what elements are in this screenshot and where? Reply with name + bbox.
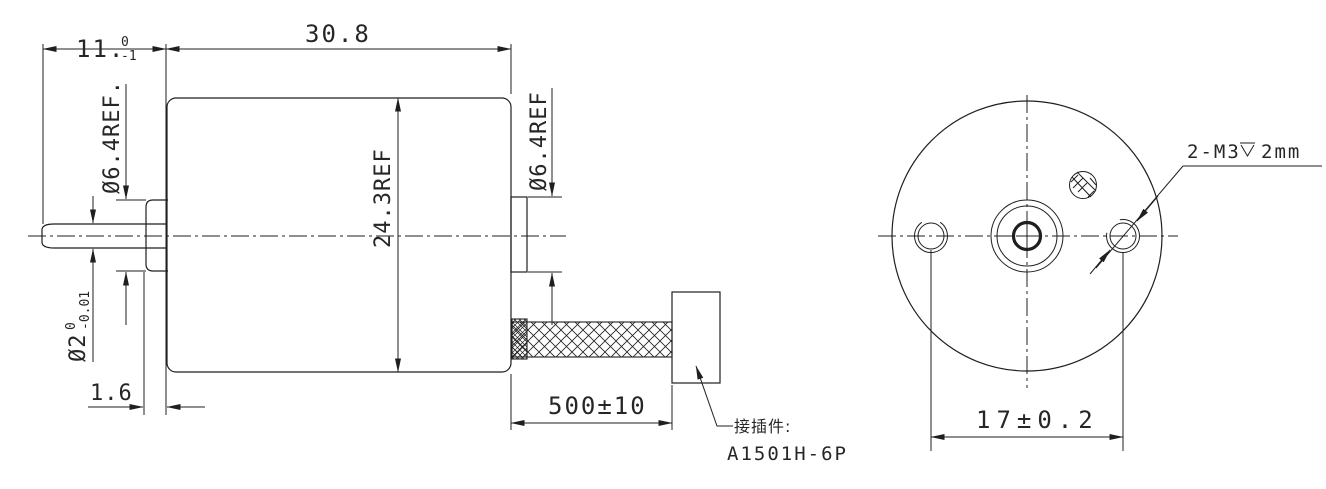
depth-symbol-icon (1240, 143, 1255, 156)
rear-boss (511, 197, 527, 272)
dim-front-boss-dia: Ø6.4REF. (100, 80, 146, 325)
connector-note: 接插件: A1501H-6P (696, 366, 848, 465)
drawing-canvas: 11. 0 -1 30.8 Ø6.4REF. 24.3REF (0, 0, 1326, 489)
dim-shaft-dia-tol-lower: -0.01 (78, 291, 93, 330)
dim-body-length-text: 30.8 (305, 20, 371, 48)
dim-lead-wire-length: 500±10 (511, 374, 672, 430)
dim-front-boss-length: 1.6 (88, 272, 205, 415)
motor-body (167, 98, 511, 372)
dim-shaft-dia-text: Ø2 (66, 334, 91, 363)
dim-shaft-dia: Ø2 0 -0.01 (64, 196, 93, 362)
alignment-feature (1070, 172, 1097, 199)
dim-body-dia: 24.3REF (371, 98, 398, 372)
dim-shaft-ext-tol-upper: 0 (121, 35, 129, 50)
motor-dimension-drawing: 11. 0 -1 30.8 Ø6.4REF. 24.3REF (0, 0, 1326, 489)
dim-shaft-ext-text: 11. (76, 35, 125, 63)
connector-leader-line (696, 366, 733, 426)
dim-mounting-hole-spec: 2-M3 2mm (1090, 141, 1322, 274)
connector-part-number: A1501H-6P (727, 443, 848, 465)
end-view: 2-M3 2mm 17±0.2 (878, 95, 1322, 451)
hole-spec-depth: 2mm (1261, 141, 1301, 163)
dim-rear-boss-dia: Ø6.4REF (527, 88, 562, 325)
dim-shaft-dia-tol-upper: 0 (64, 322, 79, 330)
lead-wire-crosshatch (512, 322, 672, 357)
dim-mounting-hole-spacing-text: 17±0.2 (976, 406, 1099, 434)
connector-note-label: 接插件: (734, 417, 791, 436)
hole-spec-leader-line (1096, 166, 1183, 268)
hole-spec-prefix: 2-M3 (1187, 141, 1241, 163)
dim-rear-boss-dia-text: Ø6.4REF (527, 91, 552, 191)
cable-bushing (512, 319, 527, 359)
dim-body-length: 30.8 (166, 20, 511, 94)
dim-front-boss-dia-text: Ø6.4REF. (100, 80, 125, 194)
dim-front-boss-length-text: 1.6 (90, 381, 133, 406)
connector-block (672, 292, 720, 383)
side-view: 11. 0 -1 30.8 Ø6.4REF. 24.3REF (28, 20, 848, 465)
dim-shaft-ext-tol-lower: -1 (121, 49, 137, 64)
dim-lead-wire-length-text: 500±10 (548, 392, 647, 420)
dim-body-dia-text: 24.3REF (371, 148, 396, 248)
